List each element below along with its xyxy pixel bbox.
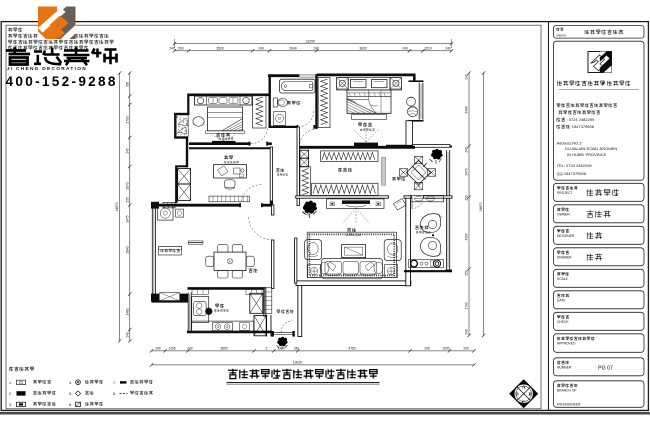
svg-text:QQ:1547379506: QQ:1547379506 xyxy=(557,171,587,176)
svg-text:240: 240 xyxy=(155,347,161,351)
svg-text:: 1547379506: : 1547379506 xyxy=(570,124,595,129)
svg-text:KW ENGINEER: KW ENGINEER xyxy=(557,402,581,406)
svg-text:DESIGNER: DESIGNER xyxy=(557,234,575,238)
svg-text:DRAWER: DRAWER xyxy=(557,256,572,260)
svg-text:1460: 1460 xyxy=(125,308,129,315)
svg-text:PG 07: PG 07 xyxy=(598,365,613,371)
svg-text:4750: 4750 xyxy=(348,347,355,351)
svg-text:2470: 2470 xyxy=(465,168,469,175)
svg-text:2: 2 xyxy=(266,347,268,351)
svg-text:5.: 5. xyxy=(69,392,72,396)
svg-text:7.: 7. xyxy=(113,381,116,385)
svg-text:500: 500 xyxy=(178,46,184,50)
svg-text:14670: 14670 xyxy=(115,202,119,212)
svg-text:OWNER: OWNER xyxy=(557,213,570,217)
svg-text:Address:NO.2: Address:NO.2 xyxy=(557,140,583,145)
svg-text:240: 240 xyxy=(463,347,469,351)
svg-text:3500: 3500 xyxy=(216,46,224,50)
svg-text:240: 240 xyxy=(187,347,193,351)
svg-text:14670: 14670 xyxy=(479,202,483,212)
svg-text:DATE: DATE xyxy=(557,299,566,303)
svg-text:PROJECT: PROJECT xyxy=(557,191,572,195)
svg-text:NUMBER: NUMBER xyxy=(557,366,572,370)
svg-text:JI CHENG DECORATION: JI CHENG DECORATION xyxy=(7,66,87,72)
svg-text::: : xyxy=(33,367,34,372)
svg-text:1.: 1. xyxy=(9,381,12,385)
svg-text:2040: 2040 xyxy=(289,46,297,50)
svg-text:240: 240 xyxy=(258,46,264,50)
svg-text:8.: 8. xyxy=(113,392,116,396)
svg-text:13020: 13020 xyxy=(293,361,303,365)
svg-text:240: 240 xyxy=(294,347,300,351)
svg-text:4130: 4130 xyxy=(465,233,469,240)
svg-text:2790: 2790 xyxy=(125,116,129,123)
svg-text:IN HUBEI PROVINCE: IN HUBEI PROVINCE xyxy=(567,152,607,157)
svg-text:C: C xyxy=(522,399,525,404)
svg-text:: 0724 2482299: : 0724 2482299 xyxy=(567,117,596,122)
svg-text:TEL: 0724 2482299: TEL: 0724 2482299 xyxy=(557,163,593,168)
svg-text:1940: 1940 xyxy=(277,347,284,351)
svg-text:235: 235 xyxy=(125,197,129,203)
svg-text:240: 240 xyxy=(169,46,175,50)
svg-text:2870: 2870 xyxy=(125,182,129,189)
svg-text:MEMO: MEMO xyxy=(557,33,567,37)
svg-text:245: 245 xyxy=(125,148,129,154)
svg-text:CHECK: CHECK xyxy=(557,320,569,324)
svg-text:SCALE: SCALE xyxy=(557,277,569,281)
svg-text:240: 240 xyxy=(424,347,430,351)
svg-text:950: 950 xyxy=(125,82,129,88)
svg-text:1000: 1000 xyxy=(442,347,449,351)
svg-text:250: 250 xyxy=(465,195,469,201)
svg-text:DUJIALIAN ROAD JINGMEN: DUJIALIAN ROAD JINGMEN xyxy=(565,146,617,151)
svg-text:2.: 2. xyxy=(9,392,12,396)
svg-text:400-152-9288: 400-152-9288 xyxy=(6,74,118,89)
svg-text:240: 240 xyxy=(465,74,469,80)
svg-text:APPROVED: APPROVED xyxy=(557,342,576,346)
svg-text:1790: 1790 xyxy=(465,302,469,309)
svg-text:2840: 2840 xyxy=(125,246,129,253)
svg-text:240: 240 xyxy=(125,332,129,338)
svg-text:B: B xyxy=(529,392,532,397)
svg-text:1510: 1510 xyxy=(424,46,432,50)
svg-text:3.: 3. xyxy=(9,403,12,407)
svg-text:240: 240 xyxy=(445,46,451,50)
svg-text:250: 250 xyxy=(465,270,469,276)
svg-text:BRANCH OF: BRANCH OF xyxy=(557,389,576,393)
svg-text:13290: 13290 xyxy=(305,39,315,43)
svg-text:240: 240 xyxy=(313,46,319,50)
svg-text:3600: 3600 xyxy=(359,46,367,50)
svg-text:3890: 3890 xyxy=(220,347,227,351)
svg-text:1295: 1295 xyxy=(168,347,175,351)
svg-text:4.: 4. xyxy=(69,381,72,385)
svg-text:240: 240 xyxy=(402,46,408,50)
svg-text:240: 240 xyxy=(465,147,469,153)
svg-text:1475: 1475 xyxy=(125,215,129,222)
svg-text:6.: 6. xyxy=(69,403,72,407)
svg-text:3440: 3440 xyxy=(465,106,469,113)
svg-text:240: 240 xyxy=(465,329,469,335)
